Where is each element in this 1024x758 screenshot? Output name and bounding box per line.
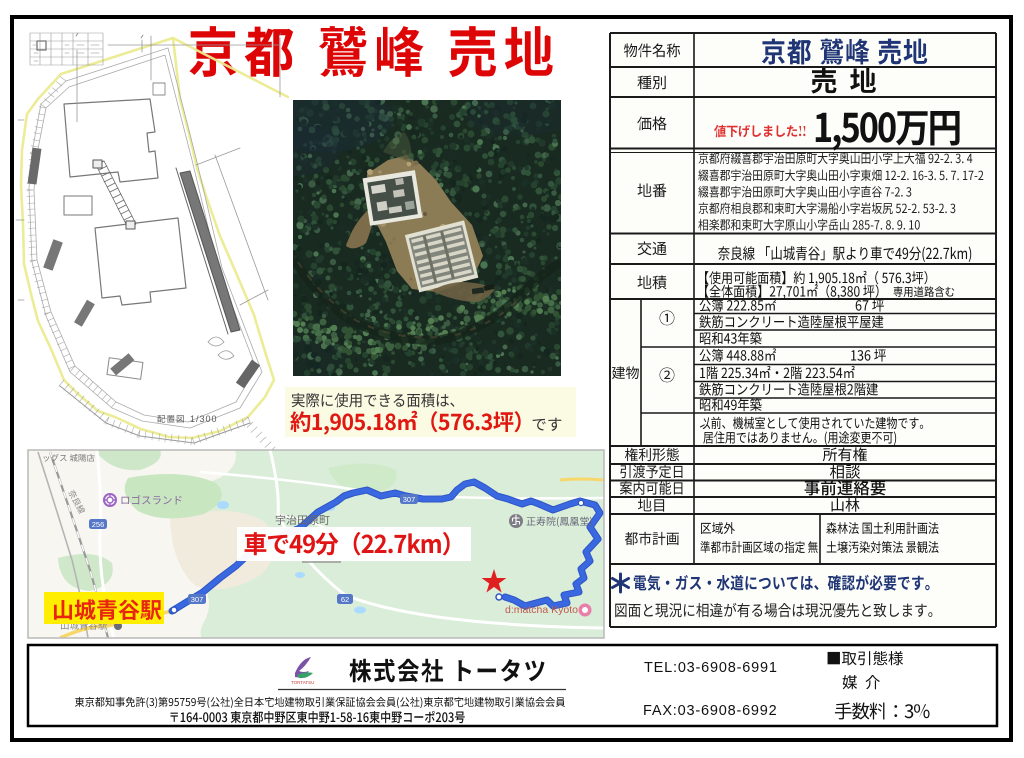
svg-text:TEL:03-6908-6991: TEL:03-6908-6991 — [644, 660, 778, 676]
svg-text:FAX:03-6908-6992: FAX:03-6908-6992 — [643, 703, 778, 719]
svg-text:307: 307 — [191, 595, 204, 604]
svg-text:1/300: 1/300 — [190, 414, 218, 424]
svg-text:d:matcha Kyoto: d:matcha Kyoto — [505, 604, 578, 616]
svg-text:TORTATSU: TORTATSU — [291, 680, 314, 685]
svg-text:307: 307 — [403, 495, 416, 504]
svg-text:62: 62 — [341, 595, 349, 604]
svg-text:256: 256 — [92, 520, 105, 529]
